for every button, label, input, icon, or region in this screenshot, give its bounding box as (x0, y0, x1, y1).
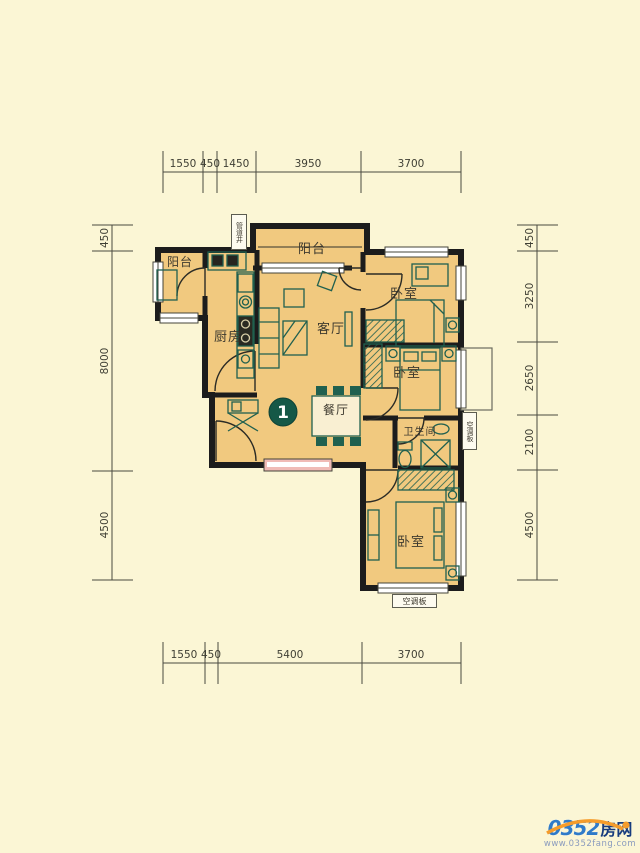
label-bedroom-top: 卧室 (390, 286, 418, 302)
floorplan-drawing: 1550 450 1450 3950 3700 1550 450 5400 37… (0, 0, 640, 853)
ac-panel-right-label: 空调板 (462, 412, 477, 450)
unit-number: 1 (277, 403, 289, 423)
label-dining-room: 餐厅 (323, 402, 349, 417)
watermark-url: www.0352fang.com (543, 839, 637, 849)
label-kitchen: 厨房 (214, 329, 242, 345)
dim-right-1: 450 (524, 228, 536, 248)
dim-top-1: 1550 (170, 158, 197, 170)
duct-shaft-label: 管道井 (231, 214, 247, 250)
dim-left-2: 8000 (99, 348, 111, 375)
label-bedroom-bottom: 卧室 (397, 534, 425, 550)
label-balcony-left: 阳台 (167, 254, 193, 269)
dim-bottom-1: 1550 (171, 649, 198, 661)
unit-number-badge: 1 (269, 398, 297, 426)
ac-panel-bottom-label: 空调板 (392, 594, 437, 608)
dim-top-5: 3700 (398, 158, 425, 170)
dim-top-3: 1450 (223, 158, 250, 170)
dim-bottom-4: 3700 (398, 649, 425, 661)
unit-footprint (158, 226, 461, 588)
dim-right-5: 4500 (524, 512, 536, 539)
dim-right-3: 2650 (524, 365, 536, 392)
dim-top-2: 450 (200, 158, 220, 170)
dim-bottom-3: 5400 (277, 649, 304, 661)
dim-right-4: 2100 (524, 429, 536, 456)
watermark-roof-icon (543, 819, 631, 835)
dim-left-3: 4500 (99, 512, 111, 539)
dim-top-4: 3950 (295, 158, 322, 170)
site-watermark: 0352 房网 www.0352fang.com (543, 819, 637, 849)
label-living-room: 客厅 (317, 321, 345, 337)
label-balcony-top: 阳台 (298, 242, 326, 257)
dim-right-2: 3250 (524, 283, 536, 310)
label-bathroom: 卫生间 (404, 425, 437, 438)
label-bedroom-middle: 卧室 (393, 365, 421, 381)
floorplan-image: 1550 450 1450 3950 3700 1550 450 5400 37… (0, 0, 640, 853)
dim-bottom-2: 450 (201, 649, 221, 661)
dim-left-1: 450 (99, 228, 111, 248)
